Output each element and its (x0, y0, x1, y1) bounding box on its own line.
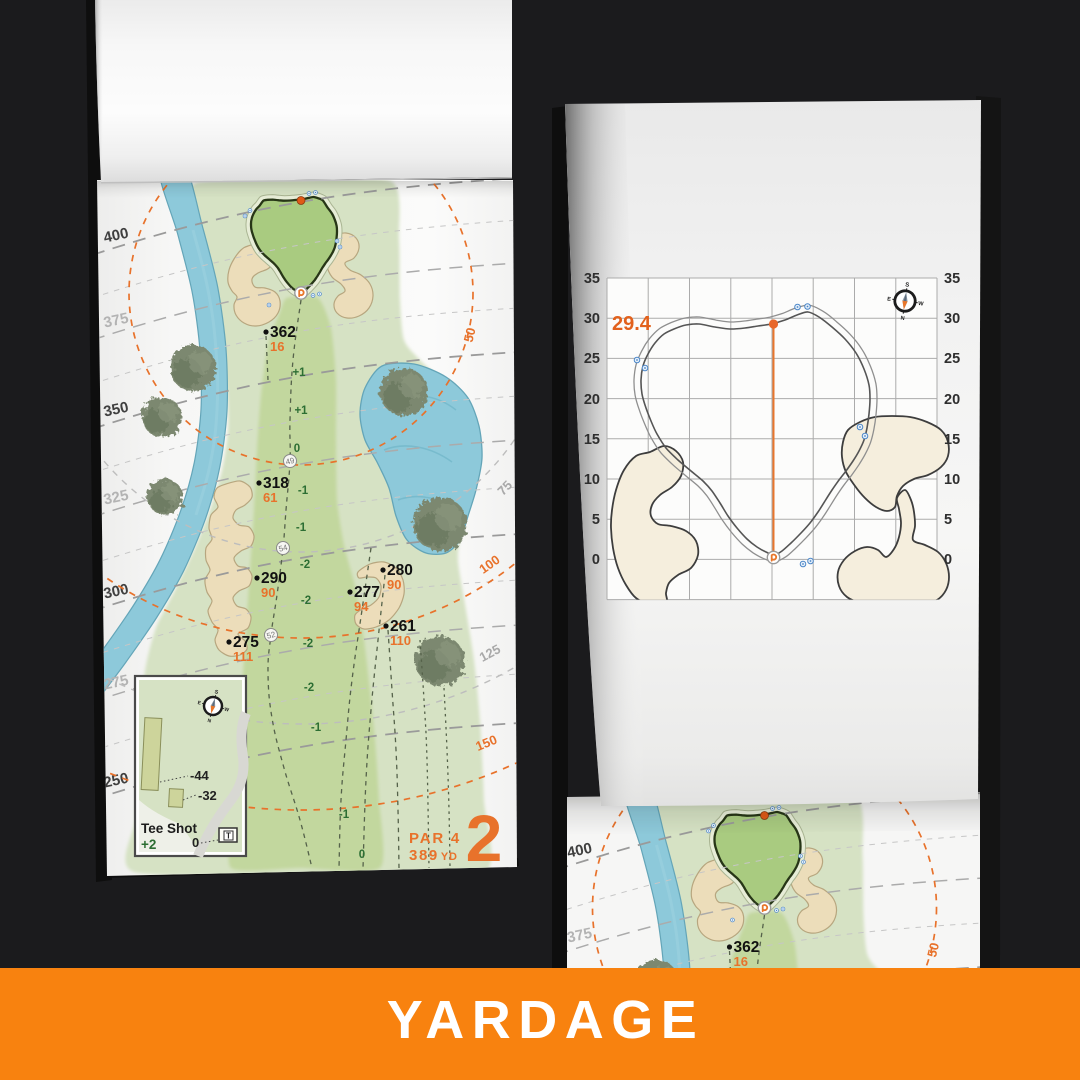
svg-text:15: 15 (584, 432, 600, 448)
svg-text:25: 25 (944, 351, 960, 367)
svg-text:30: 30 (944, 311, 960, 327)
svg-text:25: 25 (584, 351, 600, 367)
svg-text:35: 35 (944, 271, 960, 287)
svg-text:30: 30 (584, 311, 600, 327)
svg-text:5: 5 (944, 512, 952, 528)
svg-text:YARDAGE: YARDAGE (387, 990, 705, 1050)
svg-text:35: 35 (584, 271, 600, 287)
svg-text:10: 10 (944, 472, 960, 488)
svg-text:29.4: 29.4 (612, 313, 652, 335)
svg-text:5: 5 (592, 512, 600, 528)
svg-text:15: 15 (944, 432, 960, 448)
svg-text:20: 20 (584, 392, 600, 408)
svg-text:20: 20 (944, 392, 960, 408)
svg-text:0: 0 (944, 552, 952, 568)
svg-text:0: 0 (592, 552, 600, 568)
svg-text:10: 10 (584, 472, 600, 488)
